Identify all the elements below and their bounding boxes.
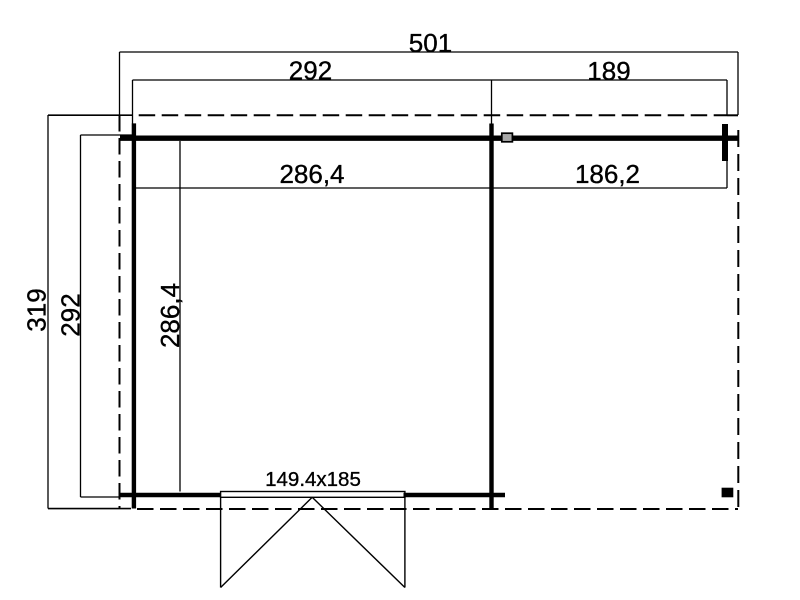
svg-text:286,4: 286,4: [155, 283, 185, 348]
svg-text:189: 189: [587, 56, 630, 86]
svg-text:319: 319: [22, 288, 52, 331]
svg-text:186,2: 186,2: [575, 159, 640, 189]
svg-text:149.4x185: 149.4x185: [265, 468, 361, 491]
svg-text:292: 292: [56, 293, 86, 336]
svg-text:501: 501: [409, 28, 452, 58]
svg-text:292: 292: [289, 56, 332, 86]
svg-text:286,4: 286,4: [279, 159, 344, 189]
